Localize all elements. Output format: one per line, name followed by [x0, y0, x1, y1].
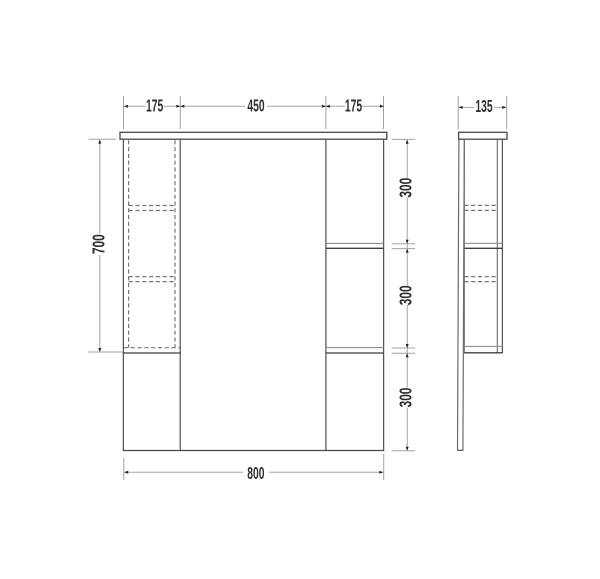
svg-text:800: 800 [247, 464, 264, 483]
svg-text:175: 175 [345, 97, 362, 116]
svg-text:700: 700 [89, 234, 109, 254]
svg-text:450: 450 [247, 97, 264, 116]
svg-text:300: 300 [396, 388, 416, 408]
svg-text:300: 300 [396, 178, 416, 198]
svg-text:175: 175 [146, 97, 163, 116]
svg-text:135: 135 [475, 97, 492, 116]
svg-text:300: 300 [396, 285, 416, 305]
